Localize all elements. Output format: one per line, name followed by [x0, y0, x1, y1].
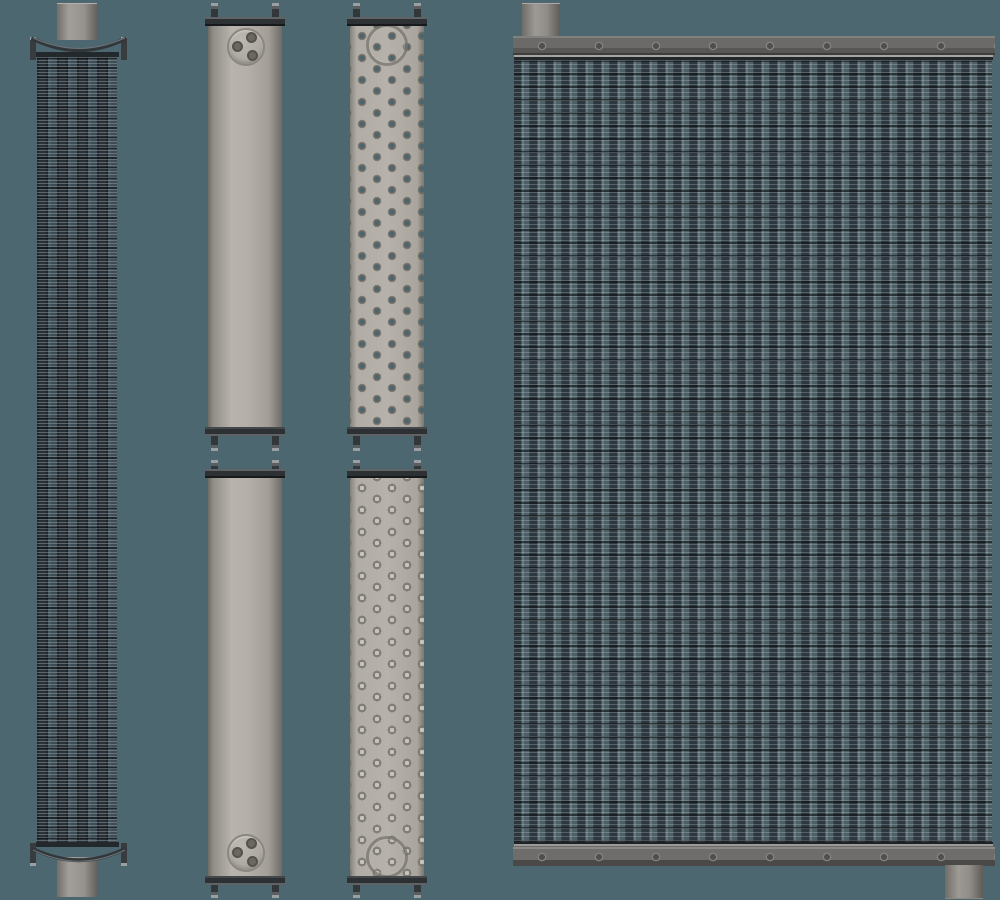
tank-body — [208, 26, 282, 427]
boss-hole — [246, 32, 257, 43]
right-fin-edge — [987, 60, 992, 842]
header-bolt-holes — [513, 36, 995, 55]
boss-hole — [247, 50, 258, 61]
bottom-flange — [347, 427, 427, 436]
left-fin-edge — [514, 60, 520, 842]
top-flange — [347, 469, 427, 478]
part-upper-tank — [208, 0, 282, 455]
header-bolt-holes — [513, 847, 995, 866]
bottom-header-bar — [513, 847, 995, 866]
boss-hole — [232, 847, 243, 858]
part-lower-header-plate — [350, 460, 424, 900]
boss-outline-ring — [366, 26, 408, 66]
bolt-pin — [211, 885, 218, 898]
bolt-pin — [414, 885, 421, 898]
boss-outline-ring — [366, 836, 408, 876]
plate-body — [350, 26, 424, 427]
tube-holes — [350, 478, 424, 876]
core-side-texture — [37, 57, 117, 842]
outlet-pipe — [945, 865, 983, 899]
top-flange — [347, 17, 427, 26]
three-hole-boss — [227, 834, 265, 872]
part-core-side-view — [0, 0, 160, 900]
top-flange — [205, 17, 285, 26]
tube-holes — [350, 26, 424, 427]
bolt-pin — [414, 436, 421, 451]
radiator-core — [514, 60, 992, 842]
plate-body — [350, 478, 424, 876]
bolt-pin — [272, 885, 279, 898]
boss-hole — [247, 856, 258, 867]
bolt-pin — [353, 436, 360, 451]
bottom-flange — [205, 876, 285, 885]
bolt-pin — [272, 436, 279, 451]
part-upper-header-plate — [350, 0, 424, 455]
bottom-flange — [347, 876, 427, 885]
render-canvas — [0, 0, 1000, 900]
inlet-pipe — [522, 3, 560, 38]
bolt-pin — [353, 885, 360, 898]
three-hole-boss — [227, 28, 265, 66]
tank-body — [208, 478, 282, 876]
bottom-flange — [205, 427, 285, 436]
bottom-cap-arc — [29, 845, 129, 867]
top-header-bar — [513, 36, 995, 55]
bolt-pin — [211, 436, 218, 451]
boss-hole — [232, 41, 243, 52]
part-lower-tank — [208, 460, 282, 900]
part-radiator-assembly — [513, 0, 995, 900]
boss-hole — [246, 838, 257, 849]
top-flange — [205, 469, 285, 478]
